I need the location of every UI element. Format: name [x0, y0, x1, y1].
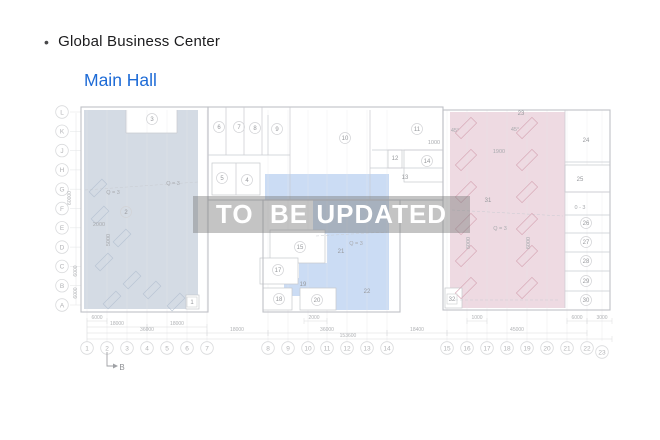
grid-column-label: 18 — [503, 345, 511, 352]
grid-column-label: 14 — [383, 345, 391, 352]
dimension-text-vertical: 6000 — [73, 265, 79, 276]
room-number: 8 — [253, 126, 257, 132]
grid-column-label: 3 — [125, 345, 129, 352]
dimension-text: 36000 — [320, 327, 334, 333]
room-number: 30 — [583, 298, 590, 304]
grid-row-label: K — [60, 129, 65, 136]
room-number: 23 — [518, 111, 525, 117]
room-box — [404, 150, 443, 182]
dimension-text: 3000 — [596, 315, 607, 321]
plan-annotation: Q = 3 — [106, 190, 120, 196]
grid-column-label: 6 — [185, 345, 189, 352]
dimension-text: 6000 — [571, 315, 582, 321]
room-number: 29 — [583, 279, 590, 285]
dimension-text: 18000 — [170, 321, 184, 327]
room-number: 13 — [402, 175, 409, 181]
plan-annotation: 1000 — [428, 140, 440, 146]
grid-row-label: D — [60, 244, 65, 251]
room-number: 15 — [297, 245, 304, 251]
grid-column-label: 11 — [324, 345, 331, 352]
plan-annotation: Q = 3 — [166, 181, 180, 187]
room-number: 18 — [276, 297, 283, 303]
plan-annotation: 0 - 3 — [574, 205, 585, 211]
plan-annotation: 1900 — [493, 149, 505, 155]
plan-annotation: 45° — [451, 128, 459, 134]
grid-column-label: 2 — [105, 345, 109, 352]
room-number: 31 — [485, 198, 492, 204]
grid-column-label: 23 — [598, 349, 606, 356]
grid-column-label: 1 — [85, 345, 89, 352]
plan-annotation: 45° — [511, 127, 519, 133]
dimension-text: 153600 — [340, 333, 357, 339]
grid-column-label: 8 — [266, 345, 270, 352]
room-number: 10 — [342, 136, 349, 142]
grid-column-label: 7 — [205, 345, 209, 352]
room-number: 12 — [392, 156, 399, 162]
room-number: 22 — [364, 289, 371, 295]
grid-row-label: J — [60, 148, 63, 155]
grid-column-label: 9 — [286, 345, 290, 352]
dimension-text: 18400 — [410, 327, 424, 333]
dimension-text: 1000 — [471, 315, 482, 321]
dimension-text-vertical: 6000 — [73, 287, 79, 298]
room-number: 28 — [583, 259, 590, 265]
room-number: 26 — [583, 221, 590, 227]
grid-column-label: 21 — [563, 345, 571, 352]
room-box — [565, 165, 610, 192]
dimension-text-vertical: 60000 — [67, 191, 73, 205]
room-number: 11 — [414, 127, 421, 133]
dimension-text: 18000 — [110, 321, 124, 327]
grid-column-label: 19 — [523, 345, 531, 352]
section-marker-arrow-icon — [113, 364, 118, 369]
dimension-text: 18000 — [230, 327, 244, 333]
grid-column-label: 4 — [145, 345, 149, 352]
grid-column-label: 22 — [583, 345, 591, 352]
plan-annotation: Q = 3 — [349, 241, 363, 247]
grid-column-label: 12 — [343, 345, 351, 352]
plan-annotation: 6000 — [466, 237, 472, 249]
section-marker-label: B — [119, 363, 124, 372]
grid-column-label: 5 — [165, 345, 169, 352]
plan-annotation: Q = 3 — [493, 226, 507, 232]
grid-row-label: C — [60, 264, 65, 271]
watermark-text: TO BE UPDATED — [216, 199, 447, 230]
page-title-row: • Global Business Center — [44, 33, 220, 50]
room-number: 6 — [217, 125, 221, 131]
room-number: 20 — [314, 298, 321, 304]
room-number: 19 — [300, 282, 307, 288]
grid-column-label: 13 — [363, 345, 371, 352]
room-number: 25 — [577, 177, 584, 183]
room-number: 24 — [583, 138, 590, 144]
room-number: 32 — [449, 297, 456, 303]
grid-row-label: G — [59, 187, 64, 194]
dimension-text: 45000 — [510, 327, 524, 333]
grid-row-label: F — [60, 206, 64, 213]
bullet-icon: • — [44, 35, 49, 49]
grid-column-label: 16 — [463, 345, 471, 352]
dimension-text: 6000 — [91, 315, 102, 321]
grid-row-label: H — [60, 167, 65, 174]
plan-annotation: 5000 — [106, 234, 112, 246]
dimension-text: 36000 — [140, 327, 154, 333]
grid-row-label: L — [60, 109, 64, 116]
room-number: 17 — [275, 268, 282, 274]
plan-annotation: 2000 — [93, 222, 105, 228]
grid-row-label: B — [60, 283, 64, 290]
room-number: 3 — [150, 117, 154, 123]
grid-row-label: A — [60, 302, 65, 309]
grid-column-label: 10 — [304, 345, 312, 352]
grid-column-label: 15 — [443, 345, 451, 352]
room-number: 7 — [237, 125, 241, 131]
hall-subtitle-link[interactable]: Main Hall — [84, 70, 157, 91]
watermark-band: TO BE UPDATED — [193, 196, 470, 233]
grid-row-label: E — [60, 225, 65, 232]
plan-annotation: 6000 — [526, 237, 532, 249]
room-number: 27 — [583, 240, 590, 246]
dimension-text: 2000 — [308, 315, 319, 321]
room-number: 9 — [275, 127, 279, 133]
room-number: 21 — [338, 249, 345, 255]
grid-column-label: 20 — [543, 345, 551, 352]
page-title: Global Business Center — [58, 33, 220, 50]
zone-left-shaded — [84, 110, 198, 309]
room-number: 14 — [424, 159, 431, 165]
grid-column-label: 17 — [483, 345, 491, 352]
